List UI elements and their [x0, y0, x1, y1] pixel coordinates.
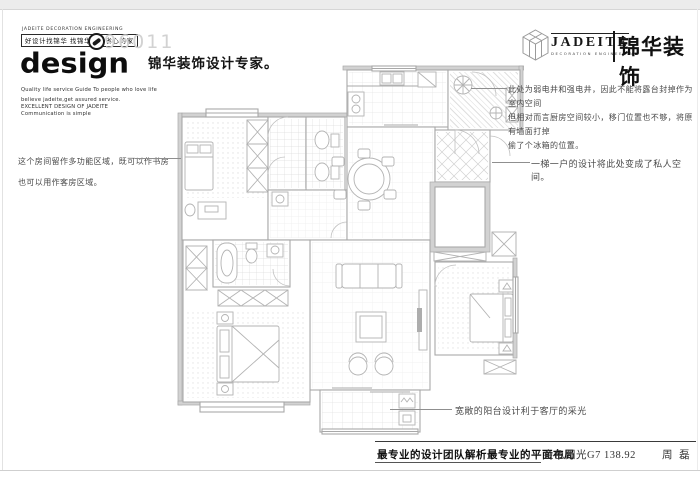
coffee-table-icon [356, 312, 386, 342]
bed-icon [185, 142, 213, 190]
note-balcony: 宽敞的阳台设计利于客厅的采光 [455, 404, 615, 417]
bed-icon [217, 326, 279, 382]
master-bedroom [183, 240, 310, 412]
page-top-strip [0, 0, 700, 10]
page-bottom-border [0, 470, 700, 471]
utility-box [399, 411, 415, 425]
brand-zh: 锦华装饰 [619, 31, 700, 91]
plant-icon [454, 76, 472, 94]
leader-line-private [492, 162, 530, 163]
fridge-icon [418, 72, 436, 87]
footer-designer: 周 磊 [662, 447, 692, 462]
nightstand-icon [217, 383, 233, 395]
footer-underline [375, 462, 541, 463]
vanity-icon [267, 244, 283, 257]
page-left-border [2, 9, 3, 471]
brand-en: JADEITE [551, 33, 629, 51]
leader-line-left [135, 158, 181, 159]
logo-tagline-group: believe jadeite,get assured service. EXC… [21, 97, 121, 118]
nightstand-icon [217, 312, 233, 324]
bathtub-icon [217, 243, 237, 283]
dining-area [332, 127, 435, 240]
leader-line-shaft [471, 88, 507, 89]
sofa-icon [336, 264, 402, 288]
note-shaft: 此处为弱电井和强电井，因此不能将露台封掉作为室内空间 但相对而言厨房空间较小，移… [508, 83, 698, 153]
south-balcony [320, 388, 420, 434]
logo-tagline-4: Communication is simple [21, 111, 121, 118]
toilet-icon [246, 243, 257, 263]
brand-divider [613, 31, 615, 62]
ac-shaft [492, 232, 516, 256]
master-bathroom [213, 240, 290, 287]
wardrobe-icon [186, 246, 207, 290]
living-room [310, 240, 430, 390]
leader-line-balcony [390, 409, 452, 410]
room-multifunction [182, 109, 268, 240]
cube-logo-icon [522, 29, 549, 61]
washer-icon [399, 394, 415, 408]
entry-hall [435, 130, 510, 182]
washbasin-icon [272, 192, 288, 206]
nightstand-icon [499, 343, 513, 354]
design-wordmark: design [20, 47, 129, 79]
sink-icon [380, 72, 404, 85]
plant-icon [490, 107, 502, 119]
logo-tagline-2: believe jadeite,get assured service. [21, 97, 121, 104]
stove-icon [348, 92, 364, 116]
floor-plan [172, 62, 524, 442]
toilet-icon [315, 131, 339, 149]
floorplan-poster: JADEITE DECORATION ENGINEERING 好设计找锦华 找锦… [0, 0, 700, 484]
guest-bathroom [268, 117, 345, 190]
footer-rule [375, 441, 696, 442]
logo-tagline-1: Quality life service Guide To people who… [21, 87, 157, 93]
kitchen [347, 66, 448, 128]
footer-project: 金色阳光G7 138.92 [543, 447, 636, 462]
ac-shaft [484, 360, 516, 374]
note-private: 一梯一户的设计将此处变成了私人空间。 [531, 157, 699, 183]
bed-icon [470, 294, 513, 342]
wardrobe-icon [218, 290, 288, 306]
logo-tagline-3: EXCELLENT DESIGN OF JADEITE [21, 104, 121, 111]
wardrobe-icon [247, 120, 268, 192]
nightstand-icon [499, 280, 513, 292]
elevator-core [430, 182, 490, 261]
